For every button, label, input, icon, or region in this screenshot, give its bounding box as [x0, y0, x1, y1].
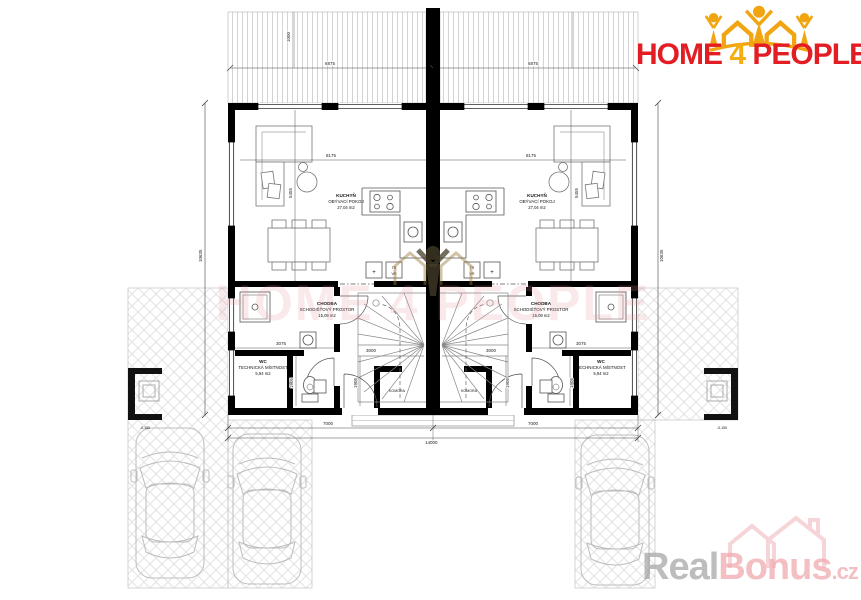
label-living-right: KUCHYŇ OBÝVACÍ POKOJ 27,04 m2 — [519, 191, 554, 210]
dim-wc-w-right: 3075 — [576, 341, 587, 346]
svg-text:TECHNICKÁ MÍSTNOST: TECHNICKÁ MÍSTNOST — [238, 365, 288, 370]
level-mark-right: -0,150 — [717, 426, 727, 430]
label-wc-left: WC TECHNICKÁ MÍSTNOST 5,94 m2 — [238, 359, 288, 376]
label-wc-right: WC TECHNICKÁ MÍSTNOST 5,94 m2 — [576, 359, 626, 376]
dim-total: 14000 — [425, 440, 438, 445]
svg-text:KUCHYŇ: KUCHYŇ — [527, 191, 547, 198]
dim-wc-h-right: 1905 — [569, 377, 574, 388]
realbonus-watermark: RealBonus.cz — [642, 546, 858, 589]
dim-wc-h-left: 1905 — [289, 377, 294, 388]
brand-home: HOME — [636, 38, 722, 71]
svg-text:KUCHYŇ: KUCHYŇ — [336, 191, 356, 198]
svg-text:27,04 m2: 27,04 m2 — [528, 205, 546, 210]
dim-half-left: 7000 — [323, 421, 334, 426]
realbonus-bonus: Bonus — [718, 546, 831, 588]
label-storage-right: KOMORA — [461, 389, 478, 393]
dim-stair-left: 3000 — [366, 348, 377, 353]
svg-text:OBÝVACÍ POKOJ: OBÝVACÍ POKOJ — [519, 199, 554, 204]
brand-logo: HOME 4 PEOPLE — [636, 38, 858, 72]
unit-left — [227, 8, 436, 415]
dim-roof-right: 6875 — [528, 61, 539, 66]
brand-people: PEOPLE — [752, 38, 861, 71]
svg-text:WC: WC — [259, 359, 267, 364]
svg-text:WC: WC — [597, 359, 605, 364]
label-storage-left: KOMORA — [389, 389, 406, 393]
dim-living-w-right: 8175 — [526, 153, 537, 158]
floorplan-page: 6875 6875 1000 8175 8175 5455 5455 3075 … — [0, 0, 861, 600]
dim-wc-h-right2: 1905 — [505, 377, 510, 388]
svg-text:27,04 m2: 27,04 m2 — [337, 205, 355, 210]
svg-text:TECHNICKÁ MÍSTNOST: TECHNICKÁ MÍSTNOST — [576, 365, 626, 370]
floorplan-drawing: 6875 6875 1000 8175 8175 5455 5455 3075 … — [0, 0, 861, 600]
level-mark-left: -0,150 — [140, 426, 150, 430]
svg-text:5,94 m2: 5,94 m2 — [593, 371, 609, 376]
svg-text:OBÝVACÍ POKOJ: OBÝVACÍ POKOJ — [328, 199, 363, 204]
svg-text:5,94 m2: 5,94 m2 — [255, 371, 271, 376]
realbonus-cz: .cz — [832, 559, 858, 584]
dim-wc-w-left: 3075 — [276, 341, 287, 346]
dim-roof-left: 6875 — [325, 61, 336, 66]
dim-living-h-right: 5455 — [574, 187, 579, 198]
realbonus-real: Real — [642, 546, 718, 588]
dim-roof-offset: 1000 — [286, 31, 291, 42]
brand-four: 4 — [729, 38, 745, 71]
dim-side-right: 10635 — [659, 249, 664, 262]
dim-side-left: 10635 — [198, 249, 203, 262]
label-living-left: KUCHYŇ OBÝVACÍ POKOJ 27,04 m2 — [328, 191, 363, 210]
dim-wc-h-left2: 1905 — [353, 377, 358, 388]
dim-living-h-left: 5455 — [288, 187, 293, 198]
dim-stair-right: 3000 — [486, 348, 497, 353]
dim-living-w-left: 8175 — [326, 153, 337, 158]
dim-half-right: 7000 — [528, 421, 539, 426]
unit-right — [430, 8, 639, 415]
